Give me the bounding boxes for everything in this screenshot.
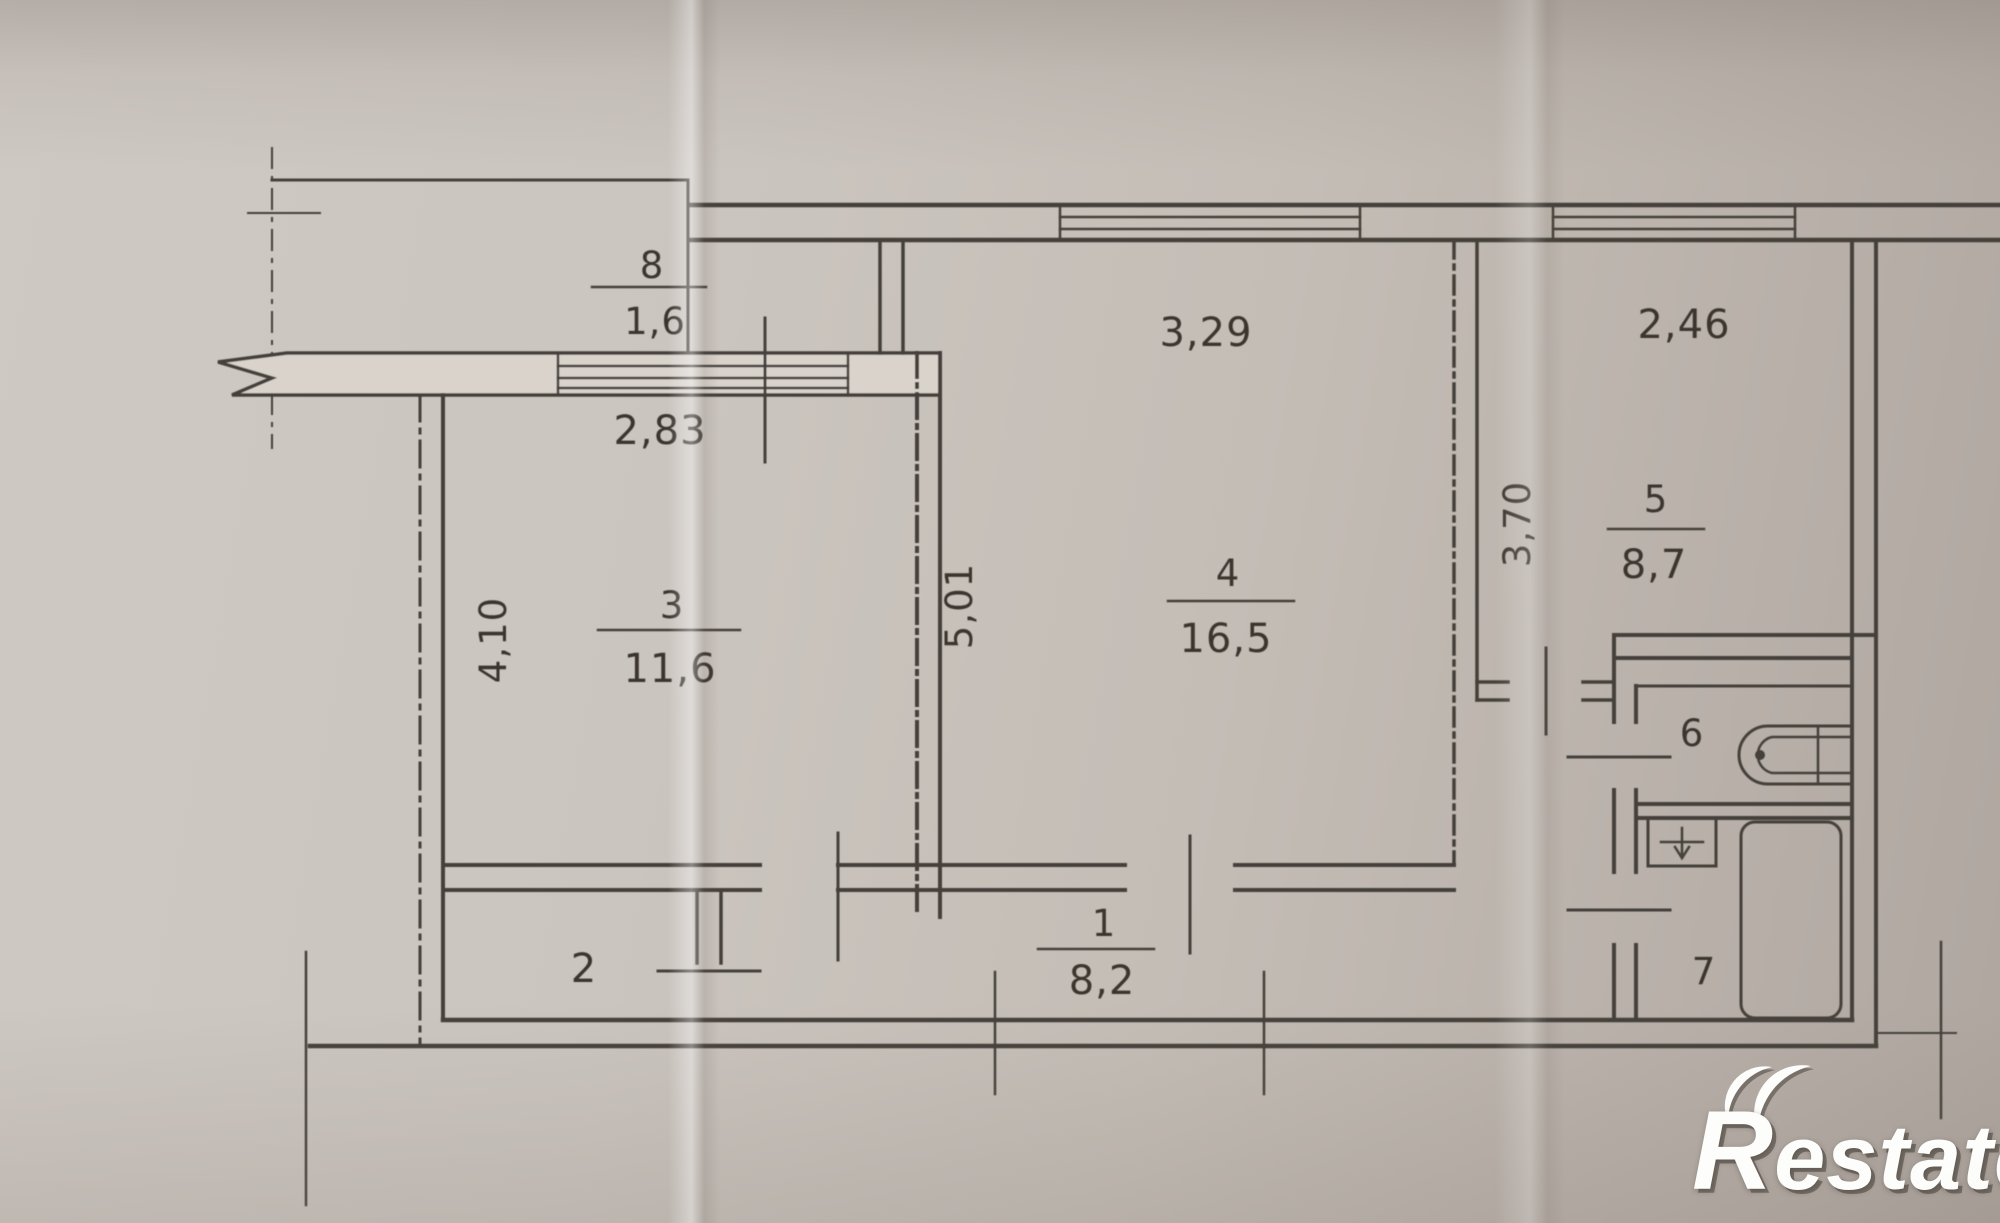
bottom-exterior-wall bbox=[310, 1020, 1876, 1046]
dim-room4-depth: 5,01 bbox=[938, 563, 981, 649]
paper-streak bbox=[1495, 0, 1565, 1223]
room1-number: 1 bbox=[1092, 902, 1117, 945]
room5-area: 8,7 bbox=[1621, 542, 1688, 588]
window-2-46 bbox=[1553, 205, 1795, 240]
window-3-29 bbox=[1060, 205, 1360, 240]
scanned-floor-plan-photo: 8 1,6 2,83 3,29 2,46 5 8,7 3,70 3 11,6 4… bbox=[0, 0, 2000, 1223]
rooms-4-5-divider-wall bbox=[1454, 240, 1477, 865]
toilet-cistern-icon bbox=[1741, 822, 1841, 1018]
room2-number: 2 bbox=[571, 946, 597, 992]
floor-plan-drawing: 8 1,6 2,83 3,29 2,46 5 8,7 3,70 3 11,6 4… bbox=[0, 0, 2000, 1223]
rooms-3-4-bottom-wall bbox=[443, 865, 1454, 890]
room5-number: 5 bbox=[1644, 478, 1669, 521]
dim-room5-window: 2,46 bbox=[1637, 302, 1730, 348]
top-exterior-wall bbox=[690, 205, 2000, 240]
balcony-outline bbox=[248, 148, 688, 448]
left-exterior-wall bbox=[420, 395, 443, 1046]
room8-number: 8 bbox=[640, 244, 665, 287]
room4-number: 4 bbox=[1216, 552, 1241, 595]
sink-icon bbox=[1648, 818, 1716, 866]
room6-number: 6 bbox=[1680, 712, 1705, 755]
rooms-3-4-divider-wall bbox=[917, 353, 940, 917]
room7-number: 7 bbox=[1692, 950, 1717, 993]
right-exterior-wall bbox=[1852, 240, 1876, 1046]
balcony-step-wall bbox=[880, 240, 903, 353]
paper-crease bbox=[668, 0, 720, 1223]
room4-area: 16,5 bbox=[1179, 616, 1272, 662]
dim-room4-window: 3,29 bbox=[1159, 310, 1252, 356]
room1-area: 8,2 bbox=[1069, 958, 1136, 1004]
bathtub-icon bbox=[1739, 726, 1852, 784]
dim-room3-depth: 4,10 bbox=[472, 597, 515, 683]
